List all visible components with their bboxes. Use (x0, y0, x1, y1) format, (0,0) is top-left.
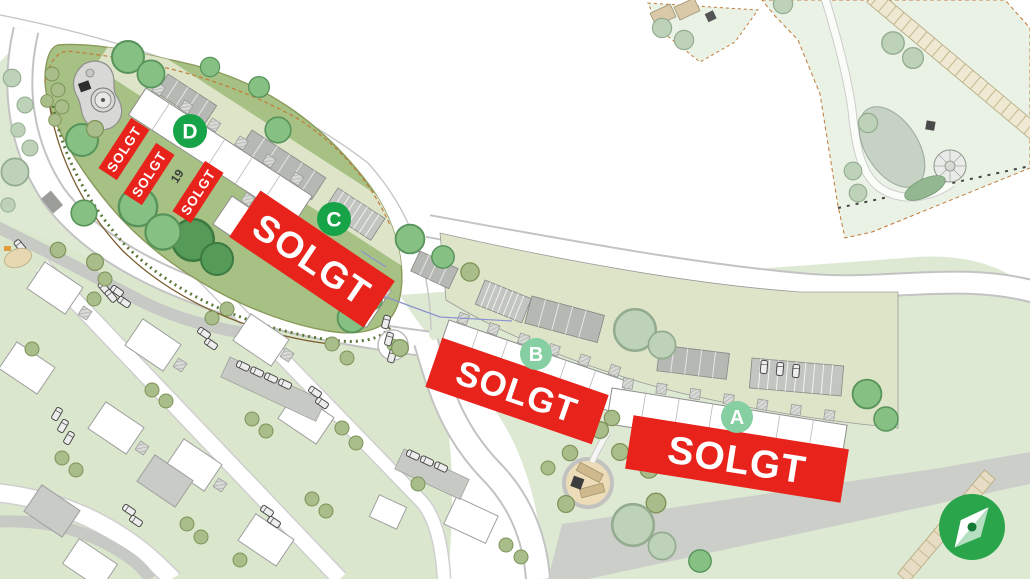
badge-building-a-letter: A (730, 407, 744, 429)
site-plan-map: SOLGT SOLGT 19 SOLGT SOLGT SOLGT SOLGT D… (0, 0, 1030, 579)
badge-building-c-letter: C (326, 209, 341, 232)
badge-building-b-letter: B (529, 344, 543, 366)
site-plan-canvas: SOLGT SOLGT 19 SOLGT SOLGT SOLGT SOLGT D… (0, 0, 1030, 579)
badge-building-c[interactable]: C (317, 202, 351, 236)
badge-building-b[interactable]: B (520, 338, 552, 370)
badge-building-d-letter: D (182, 121, 197, 144)
badge-building-d[interactable]: D (173, 114, 207, 148)
badge-building-a[interactable]: A (721, 401, 753, 433)
compass-button[interactable] (939, 494, 1005, 560)
